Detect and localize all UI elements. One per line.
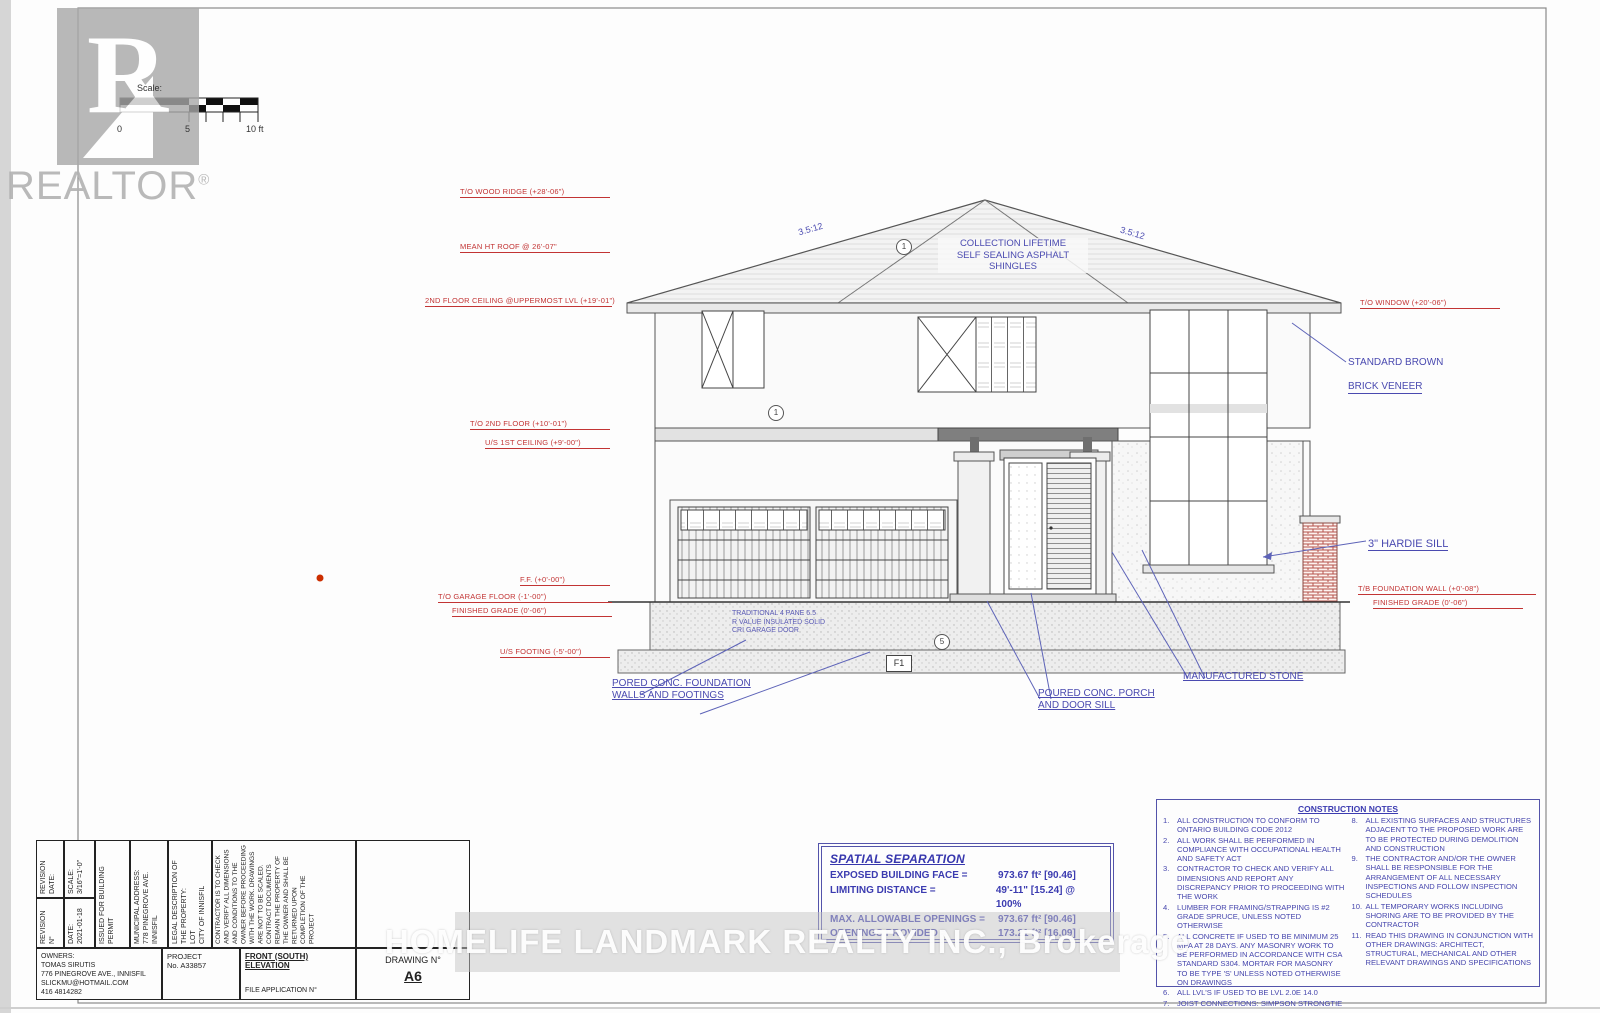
note-item: 10.ALL TEMPORARY WORKS INCLUDING SHORING…	[1352, 902, 1534, 930]
datum-window-right: T/O WINDOW (+20'-06")	[1360, 298, 1500, 309]
datum-garage-floor: T/O GARAGE FLOOR (-1'-00")	[438, 592, 612, 603]
brick-line2: BRICK VENEER	[1348, 381, 1422, 394]
realtor-wordmark: REALTOR®	[6, 164, 210, 209]
tb-scale: SCALE: 3/16"=1'-0"	[64, 840, 95, 898]
note-text: ALL LVL'S IF USED TO BE LVL 2.0E 14.0	[1177, 988, 1318, 997]
tb-owners-text: OWNERS: TOMAS SIRUTIS 776 PINEGROVE AVE.…	[37, 949, 161, 1000]
brick-pier	[1300, 516, 1340, 602]
keynote-circle-roof: 1	[896, 239, 912, 255]
spatial-value: 49'-11" [15.24] @ 100%	[996, 884, 1102, 913]
foundation-callout: PORED CONC. FOUNDATION WALLS AND FOOTING…	[612, 678, 751, 702]
realtor-r-icon: R	[57, 8, 199, 165]
datum-ff: F.F. (+0'-00")	[520, 575, 610, 586]
note-text: JOIST CONNECTIONS: SIMPSON STRONGTIE	[1177, 999, 1342, 1008]
note-number: 7.	[1163, 999, 1177, 1008]
tb-issued-text: ISSUED FOR BUILDING PERMIT	[96, 841, 118, 947]
hardie-text: 3" HARDIE SILL	[1368, 538, 1448, 551]
note-item: 3.CONTRACTOR TO CHECK AND VERIFY ALL DIM…	[1163, 864, 1345, 901]
tb-municipal-text: MUNICIPAL ADDRESS: 778 PINEGROVE AVE. IN…	[131, 841, 162, 947]
tb-disclaimer: CONTRACTOR IS TO CHECK AND VERIFY ALL DI…	[212, 840, 356, 948]
scale-tick-10: 10 ft	[246, 124, 264, 134]
datum-grade-right: FINISHED GRADE (0'-06")	[1373, 598, 1523, 609]
note-text: READ THIS DRAWING IN CONJUNCTION WITH OT…	[1366, 931, 1534, 968]
window-upper-left	[702, 311, 764, 388]
datum-2f-ceiling: 2ND FLOOR CEILING @UPPERMOST LVL (+19'-0…	[425, 296, 612, 307]
tb-date: DATE: 2021-01-18	[64, 898, 95, 948]
tb-revision-date: REVISION DATE:	[36, 840, 64, 898]
datum-footing: U/S FOOTING (-5'-00")	[500, 647, 610, 658]
spatial-row-limiting: LIMITING DISTANCE = 49'-11" [15.24] @ 10…	[830, 884, 1102, 913]
tb-revision-no-text: REVISION N°	[37, 899, 59, 947]
note-number: 1.	[1163, 816, 1177, 835]
note-text: ALL CONSTRUCTION TO CONFORM TO ONTARIO B…	[1177, 816, 1345, 835]
shingles-callout: COLLECTION LIFETIME SELF SEALING ASPHALT…	[938, 238, 1088, 273]
tb-municipal: MUNICIPAL ADDRESS: 778 PINEGROVE AVE. IN…	[130, 840, 168, 948]
tb-disclaimer-text: CONTRACTOR IS TO CHECK AND VERIFY ALL DI…	[213, 841, 319, 947]
brick-veneer-callout: STANDARD BROWN BRICK VENEER	[1348, 345, 1443, 394]
note-item: 7.JOIST CONNECTIONS: SIMPSON STRONGTIE	[1163, 999, 1345, 1008]
realtor-logo: R	[57, 8, 199, 165]
window-tall-right	[1143, 310, 1274, 573]
note-number: 11.	[1352, 931, 1366, 968]
garage-door-callout: TRADITIONAL 4 PANE 6.5 R VALUE INSULATED…	[732, 610, 825, 636]
registered-mark: ®	[198, 172, 210, 189]
datum-1f-ceiling: U/S 1ST CEILING (+9'-00")	[485, 438, 610, 449]
brokerage-watermark: HOMELIFE LANDMARK REALTY INC., Brokerage	[455, 912, 1120, 972]
note-item: 2.ALL WORK SHALL BE PERFORMED IN COMPLIA…	[1163, 836, 1345, 864]
note-text: ALL CONCRETE IF USED TO BE MINIMUM 25 MP…	[1177, 932, 1345, 988]
note-number: 10.	[1352, 902, 1366, 930]
construction-notes-box: CONSTRUCTION NOTES 1.ALL CONSTRUCTION TO…	[1156, 799, 1540, 987]
note-item: 4.LUMBER FOR FRAMING/STRAPPING IS #2 GRA…	[1163, 903, 1345, 931]
tb-sheet-title-text: FRONT (SOUTH) ELEVATION	[241, 949, 355, 973]
note-item: 11.READ THIS DRAWING IN CONJUNCTION WITH…	[1352, 931, 1534, 968]
tb-revision-no: REVISION N°	[36, 898, 64, 948]
construction-notes-title: CONSTRUCTION NOTES	[1163, 804, 1533, 814]
note-number: 6.	[1163, 988, 1177, 997]
hardie-sill-callout: 3" HARDIE SILL	[1368, 526, 1448, 550]
note-item: 9.THE CONTRACTOR AND/OR THE OWNER SHALL …	[1352, 854, 1534, 900]
datum-2f-floor: T/O 2ND FLOOR (+10'-01")	[470, 419, 610, 430]
tb-legal-text: LEGAL DESCRIPTION OF THE PROPERTY: LOT C…	[169, 841, 209, 947]
notes-left-column: 1.ALL CONSTRUCTION TO CONFORM TO ONTARIO…	[1163, 816, 1345, 1009]
keynote-circle-foundation: 5	[934, 634, 950, 650]
note-item: 8.ALL EXISTING SURFACES AND STRUCTURES A…	[1352, 816, 1534, 853]
porch-callout: POURED CONC. PORCH AND DOOR SILL	[1038, 688, 1155, 712]
note-text: THE CONTRACTOR AND/OR THE OWNER SHALL BE…	[1366, 854, 1534, 900]
construction-notes-columns: 1.ALL CONSTRUCTION TO CONFORM TO ONTARIO…	[1163, 816, 1533, 1009]
shingles-line2: SELF SEALING ASPHALT	[938, 250, 1088, 262]
window-upper-center	[918, 317, 1036, 392]
tb-project: PROJECT No. A33857	[162, 948, 240, 1000]
scale-label: Scale:	[137, 83, 162, 93]
tb-issued: ISSUED FOR BUILDING PERMIT	[95, 840, 130, 948]
scale-tick-0: 0	[117, 124, 122, 134]
datum-grade-left: FINISHED GRADE (0'-06")	[452, 606, 612, 617]
brick-line1: STANDARD BROWN	[1348, 357, 1443, 369]
stone-callout: MANUFACTURED STONE	[1183, 671, 1303, 683]
note-number: 3.	[1163, 864, 1177, 901]
note-text: ALL WORK SHALL BE PERFORMED IN COMPLIANC…	[1177, 836, 1345, 864]
note-item: 6.ALL LVL'S IF USED TO BE LVL 2.0E 14.0	[1163, 988, 1345, 997]
note-number: 9.	[1352, 854, 1366, 900]
note-number: 8.	[1352, 816, 1366, 853]
tb-owners: OWNERS: TOMAS SIRUTIS 776 PINEGROVE AVE.…	[36, 948, 162, 1000]
note-text: LUMBER FOR FRAMING/STRAPPING IS #2 GRADE…	[1177, 903, 1345, 931]
tb-file-application-text: FILE APPLICATION N°	[241, 983, 321, 998]
scale-tick-5: 5	[185, 124, 190, 134]
tb-sheet-title: FRONT (SOUTH) ELEVATION FILE APPLICATION…	[240, 948, 356, 1000]
datum-foundation-wall: T/B FOUNDATION WALL (+0'-08")	[1358, 584, 1536, 595]
spatial-title: SPATIAL SEPARATION	[830, 852, 1102, 866]
tb-scale-text: SCALE: 3/16"=1'-0"	[65, 841, 87, 897]
drawing-sheet: R REALTOR® Scale: 0 5 10 ft T/O WOOD RID…	[0, 0, 1600, 1013]
spatial-row-exposed: EXPOSED BUILDING FACE = 973.67 ft² [90.4…	[830, 869, 1102, 884]
notes-right-column: 8.ALL EXISTING SURFACES AND STRUCTURES A…	[1352, 816, 1534, 1009]
note-text: ALL EXISTING SURFACES AND STRUCTURES ADJ…	[1366, 816, 1534, 853]
red-dot-mark	[317, 575, 324, 582]
shingles-line1: COLLECTION LIFETIME	[938, 238, 1088, 250]
spatial-value: 973.67 ft² [90.46]	[998, 869, 1076, 884]
datum-mean-roof: MEAN HT ROOF @ 26'-07"	[460, 242, 610, 253]
footing-tag-f1: F1	[886, 655, 912, 672]
spatial-label: EXPOSED BUILDING FACE =	[830, 869, 998, 884]
porch-entry	[950, 437, 1116, 603]
keynote-circle-wall: 1	[768, 405, 784, 421]
note-number: 2.	[1163, 836, 1177, 864]
note-text: CONTRACTOR TO CHECK AND VERIFY ALL DIMEN…	[1177, 864, 1345, 901]
tb-revision-date-text: REVISION DATE:	[37, 841, 59, 897]
note-item: 1.ALL CONSTRUCTION TO CONFORM TO ONTARIO…	[1163, 816, 1345, 835]
brokerage-watermark-text: HOMELIFE LANDMARK REALTY INC., Brokerage	[385, 923, 1190, 961]
datum-ridge: T/O WOOD RIDGE (+28'-06")	[460, 187, 610, 198]
note-text: ALL TEMPORARY WORKS INCLUDING SHORING AR…	[1366, 902, 1534, 930]
note-item: 5.ALL CONCRETE IF USED TO BE MINIMUM 25 …	[1163, 932, 1345, 988]
tb-project-text: PROJECT No. A33857	[163, 949, 239, 973]
garage-doors	[670, 500, 957, 602]
tb-date-text: DATE: 2021-01-18	[65, 899, 87, 947]
foundation	[608, 602, 1350, 673]
tb-legal: LEGAL DESCRIPTION OF THE PROPERTY: LOT C…	[168, 840, 212, 948]
shingles-line3: SHINGLES	[938, 261, 1088, 273]
tb-drawing-no-value: A6	[357, 968, 469, 984]
spatial-label: LIMITING DISTANCE =	[830, 884, 996, 913]
